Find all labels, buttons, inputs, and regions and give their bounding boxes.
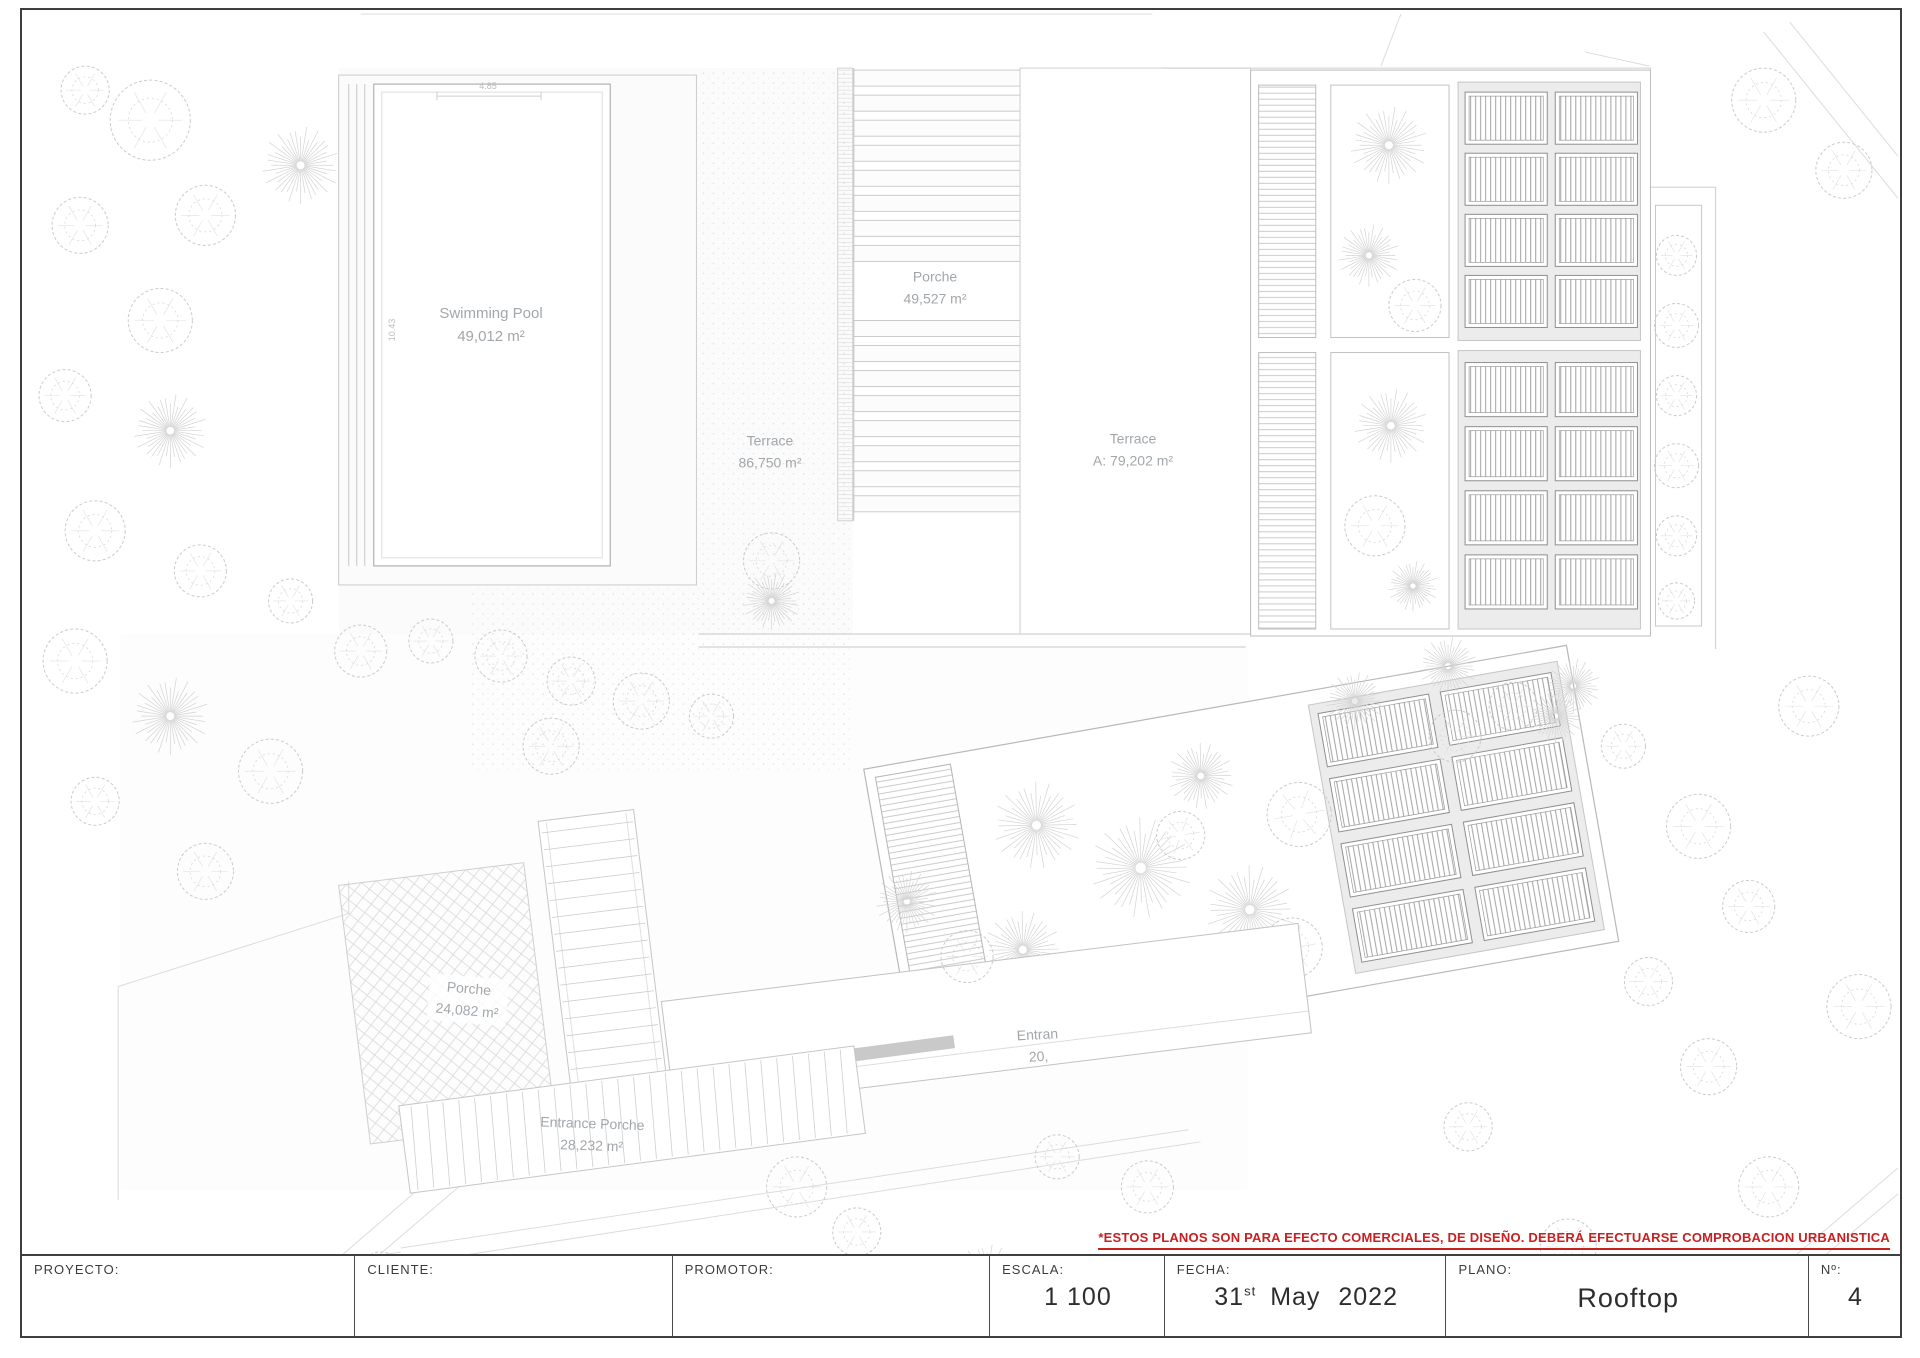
label-roof-porche: Porche49,527 m² — [895, 264, 974, 311]
label-entrance-partial: Entran20, — [1016, 1023, 1059, 1068]
drawing-area: Swimming Pool49,012 m² Porche49,527 m² T… — [22, 10, 1900, 1256]
titleblock-field-fecha: FECHA: 31stMay 2022 — [1164, 1256, 1446, 1336]
planter-box — [1331, 85, 1449, 337]
label-terrace: Terrace86,750 m² — [738, 430, 801, 473]
plan-sheet: Swimming Pool49,012 m² Porche49,527 m² T… — [0, 0, 1920, 1358]
titleblock-field-plano: PLANO: Rooftop — [1445, 1256, 1807, 1336]
plan-name-value: Rooftop — [1458, 1283, 1797, 1314]
sheet-number-value: 4 — [1821, 1283, 1890, 1312]
vegetation-strip — [1259, 85, 1316, 337]
label-side-porche: Porche24,082 m² — [427, 973, 510, 1027]
date-value: 31stMay 2022 — [1177, 1283, 1436, 1312]
dimension-height: 10.43 — [387, 319, 397, 342]
titleblock-field-numero: Nº: 4 — [1808, 1256, 1900, 1336]
titleblock-field-proyecto: PROYECTO: — [22, 1256, 354, 1336]
vegetation-strip — [1259, 353, 1316, 629]
hedge-strip — [1655, 205, 1701, 626]
label-terrace-a: TerraceA: 79,202 m² — [1093, 428, 1173, 471]
louvered-porche — [838, 68, 1020, 634]
title-block: PROYECTO: CLIENTE: PROMOTOR: ESCALA: 1 1… — [22, 1254, 1900, 1336]
planter-box — [1331, 353, 1449, 629]
terrace-stipple — [698, 68, 852, 634]
scale-value: 1 100 — [1002, 1283, 1154, 1312]
titleblock-field-promotor: PROMOTOR: — [672, 1256, 989, 1336]
label-swimming-pool: Swimming Pool49,012 m² — [439, 302, 542, 349]
dimension-width: 4.85 — [479, 81, 497, 91]
rooftop-plan-svg — [22, 10, 1900, 1256]
sheet-frame: Swimming Pool49,012 m² Porche49,527 m² T… — [20, 8, 1902, 1338]
label-entrance-porche: Entrance Porche28,232 m² — [539, 1112, 645, 1159]
commercial-disclaimer-note: *ESTOS PLANOS SON PARA EFECTO COMERCIALE… — [1098, 1230, 1890, 1250]
terrace-a-area — [1020, 68, 1250, 634]
titleblock-field-cliente: CLIENTE: — [354, 1256, 671, 1336]
titleblock-field-escala: ESCALA: 1 100 — [989, 1256, 1164, 1336]
